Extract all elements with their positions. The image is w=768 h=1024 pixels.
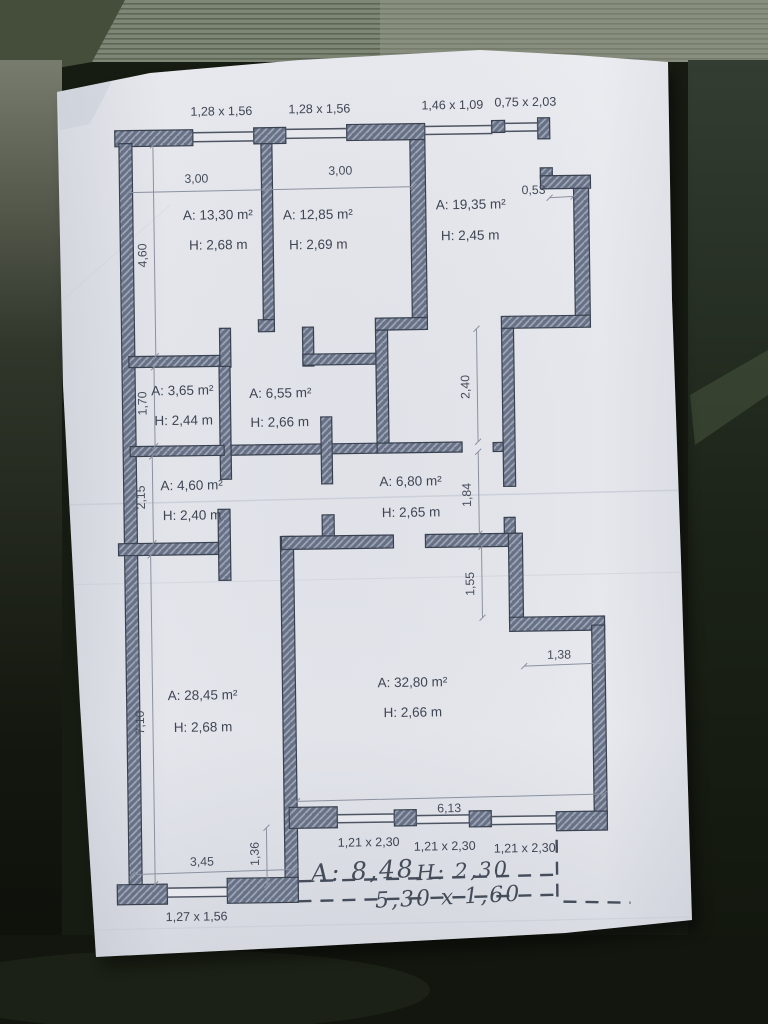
wall-segment [261, 144, 274, 320]
window [425, 126, 492, 135]
dimension-label: 1,70 [135, 391, 149, 415]
wall-segment [394, 810, 416, 826]
wall-segment [469, 811, 491, 827]
wall-segment [347, 123, 425, 140]
wall-segment [508, 533, 523, 623]
wall-segment [130, 445, 224, 456]
wall-segment [321, 417, 333, 484]
dimension-label: 3,45 [190, 854, 214, 868]
dimension-label: 1,38 [547, 647, 571, 661]
window-size-label: 1,28 x 1,56 [190, 104, 252, 119]
window-size-label: 1,46 x 1,09 [421, 98, 483, 113]
dimension-label: 0,53 [521, 183, 545, 197]
balcony-dashed-line [557, 840, 558, 905]
wall-segment [493, 442, 503, 451]
window [286, 129, 347, 139]
right-strip [688, 60, 768, 1024]
wall-segment [231, 443, 377, 455]
wall-segment [592, 625, 608, 817]
dimension-label: 1,55 [463, 572, 477, 596]
wall-segment [322, 515, 334, 536]
room-height-label: H: 2,68 m [189, 237, 248, 253]
wall-segment [410, 139, 427, 317]
dimension-label: 7,10 [133, 710, 147, 734]
dimension-label: 6,13 [437, 801, 461, 815]
wall-segment [492, 120, 505, 132]
floor-plan-svg: 1,28 x 1,56 1,28 x 1,56 1,46 x 1,09 0,75… [0, 0, 768, 1024]
wall-segment [375, 317, 427, 330]
dimension-label: 1,84 [460, 483, 474, 507]
wall-segment [219, 366, 232, 479]
room-area-label: A: 13,30 m² [183, 207, 253, 223]
wall-segment [377, 442, 462, 453]
window-size-label: 1,21 x 2,30 [414, 839, 476, 854]
wall-segment [510, 616, 605, 631]
window [337, 814, 394, 823]
dimension-label: 3,00 [328, 163, 352, 177]
wall-segment [289, 807, 337, 829]
room-area-label: A: 28,45 m² [168, 687, 238, 703]
wall-segment [538, 118, 550, 139]
left-strip [0, 60, 62, 1024]
room-area-label: A: 6,80 m² [379, 473, 442, 489]
wall-segment [281, 535, 393, 550]
room-area-label: A: 4,60 m² [160, 477, 223, 493]
room-height-label: H: 2,44 m [154, 412, 213, 428]
room-height-label: H: 2,65 m [382, 504, 441, 520]
window [193, 132, 254, 142]
room-height-label: H: 2,45 m [441, 227, 500, 243]
window [505, 123, 538, 131]
photo-of-floor-plan: 1,28 x 1,56 1,28 x 1,56 1,46 x 1,09 0,75… [0, 0, 768, 1024]
dimension-label: 1,36 [248, 842, 262, 866]
wall-segment [540, 175, 590, 189]
dimension-label: 3,00 [184, 172, 208, 186]
dimension-label: 2,15 [134, 485, 148, 509]
window-size-label: 1,27 x 1,56 [166, 909, 228, 924]
wall-segment [227, 877, 298, 903]
room-area-label: A: 12,85 m² [283, 206, 353, 222]
wall-segment [258, 320, 274, 332]
window-size-label: 1,21 x 2,30 [494, 841, 556, 856]
wall-segment [219, 328, 231, 367]
wall-segment [425, 533, 516, 547]
dimension-label: 2,40 [458, 375, 472, 399]
wall-segment [254, 127, 286, 143]
room-area-label: A: 3,65 m² [151, 382, 214, 398]
room-height-label: H: 2,66 m [383, 704, 442, 720]
handwritten-height-label: H: 2,30 [415, 857, 510, 886]
window [416, 815, 469, 824]
room-height-label: H: 2,40 m [163, 507, 222, 523]
dimension-label: 4,60 [135, 243, 149, 267]
room-area-label: A: 19,35 m² [436, 196, 506, 212]
wall-segment [118, 542, 218, 555]
wall-segment [574, 188, 591, 315]
room-area-label: A: 32,80 m² [377, 674, 447, 690]
window-size-label: 1,21 x 2,30 [338, 835, 400, 850]
wall-segment [501, 315, 590, 328]
handwritten-area-label: A: 8,48 [308, 854, 415, 888]
wall-segment [117, 884, 167, 905]
room-area-label: A: 6,55 m² [249, 385, 312, 401]
room-height-label: H: 2,69 m [289, 237, 348, 253]
window [167, 887, 227, 897]
wall-segment [501, 328, 515, 486]
wall-segment [129, 355, 220, 367]
wall-segment [375, 330, 389, 448]
room-height-label: H: 2,66 m [250, 414, 309, 430]
wall-segment [556, 811, 607, 831]
room-height-label: H: 2,68 m [174, 719, 233, 735]
wall-segment [303, 353, 376, 365]
window-size-label: 0,75 x 2,03 [494, 95, 556, 110]
window [491, 816, 556, 825]
window-size-label: 1,28 x 1,56 [288, 102, 350, 117]
